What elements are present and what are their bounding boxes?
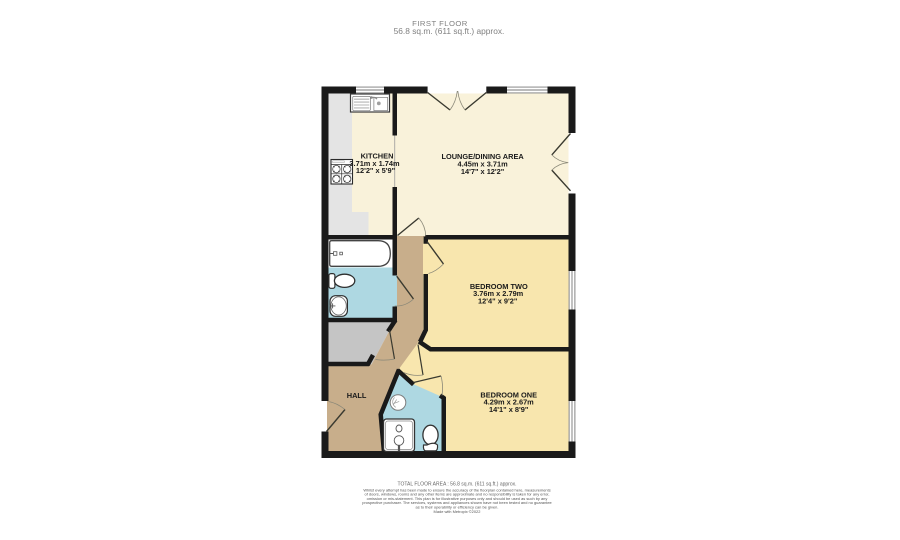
svg-text:14'7" x 12'2": 14'7" x 12'2" xyxy=(461,167,505,176)
svg-text:Made with Metropix ©2022: Made with Metropix ©2022 xyxy=(434,509,481,514)
svg-text:12'2" x 5'9": 12'2" x 5'9" xyxy=(356,166,396,175)
svg-text:12'4" x 9'2": 12'4" x 9'2" xyxy=(478,296,518,305)
svg-text:14'1" x 8'9": 14'1" x 8'9" xyxy=(489,405,529,414)
svg-text:HALL: HALL xyxy=(347,391,367,400)
svg-text:56.8 sq.m. (611 sq.ft.) approx: 56.8 sq.m. (611 sq.ft.) approx. xyxy=(394,26,505,36)
